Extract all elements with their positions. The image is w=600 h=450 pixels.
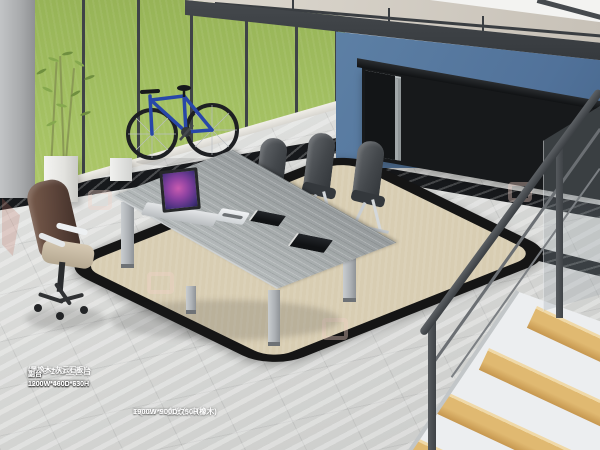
table-leg — [268, 290, 280, 346]
table-leg — [186, 286, 196, 314]
laptop-screen — [159, 167, 201, 213]
window-mullion — [82, 0, 85, 196]
watermark — [88, 190, 112, 210]
table-leg — [121, 202, 134, 268]
railing-post — [428, 320, 436, 450]
product-spec: 副台1200W*460D*630H — [28, 370, 89, 389]
table-shadow — [110, 300, 340, 340]
watermark — [147, 272, 174, 294]
showroom-photo: F028-10B主管台 (黑橡木+灰云石板) 主台1600W*800D*750H… — [0, 0, 600, 450]
product-spec: 1900W*900D*750H — [133, 407, 198, 417]
structural-column — [0, 0, 35, 198]
railing-post — [556, 146, 563, 318]
